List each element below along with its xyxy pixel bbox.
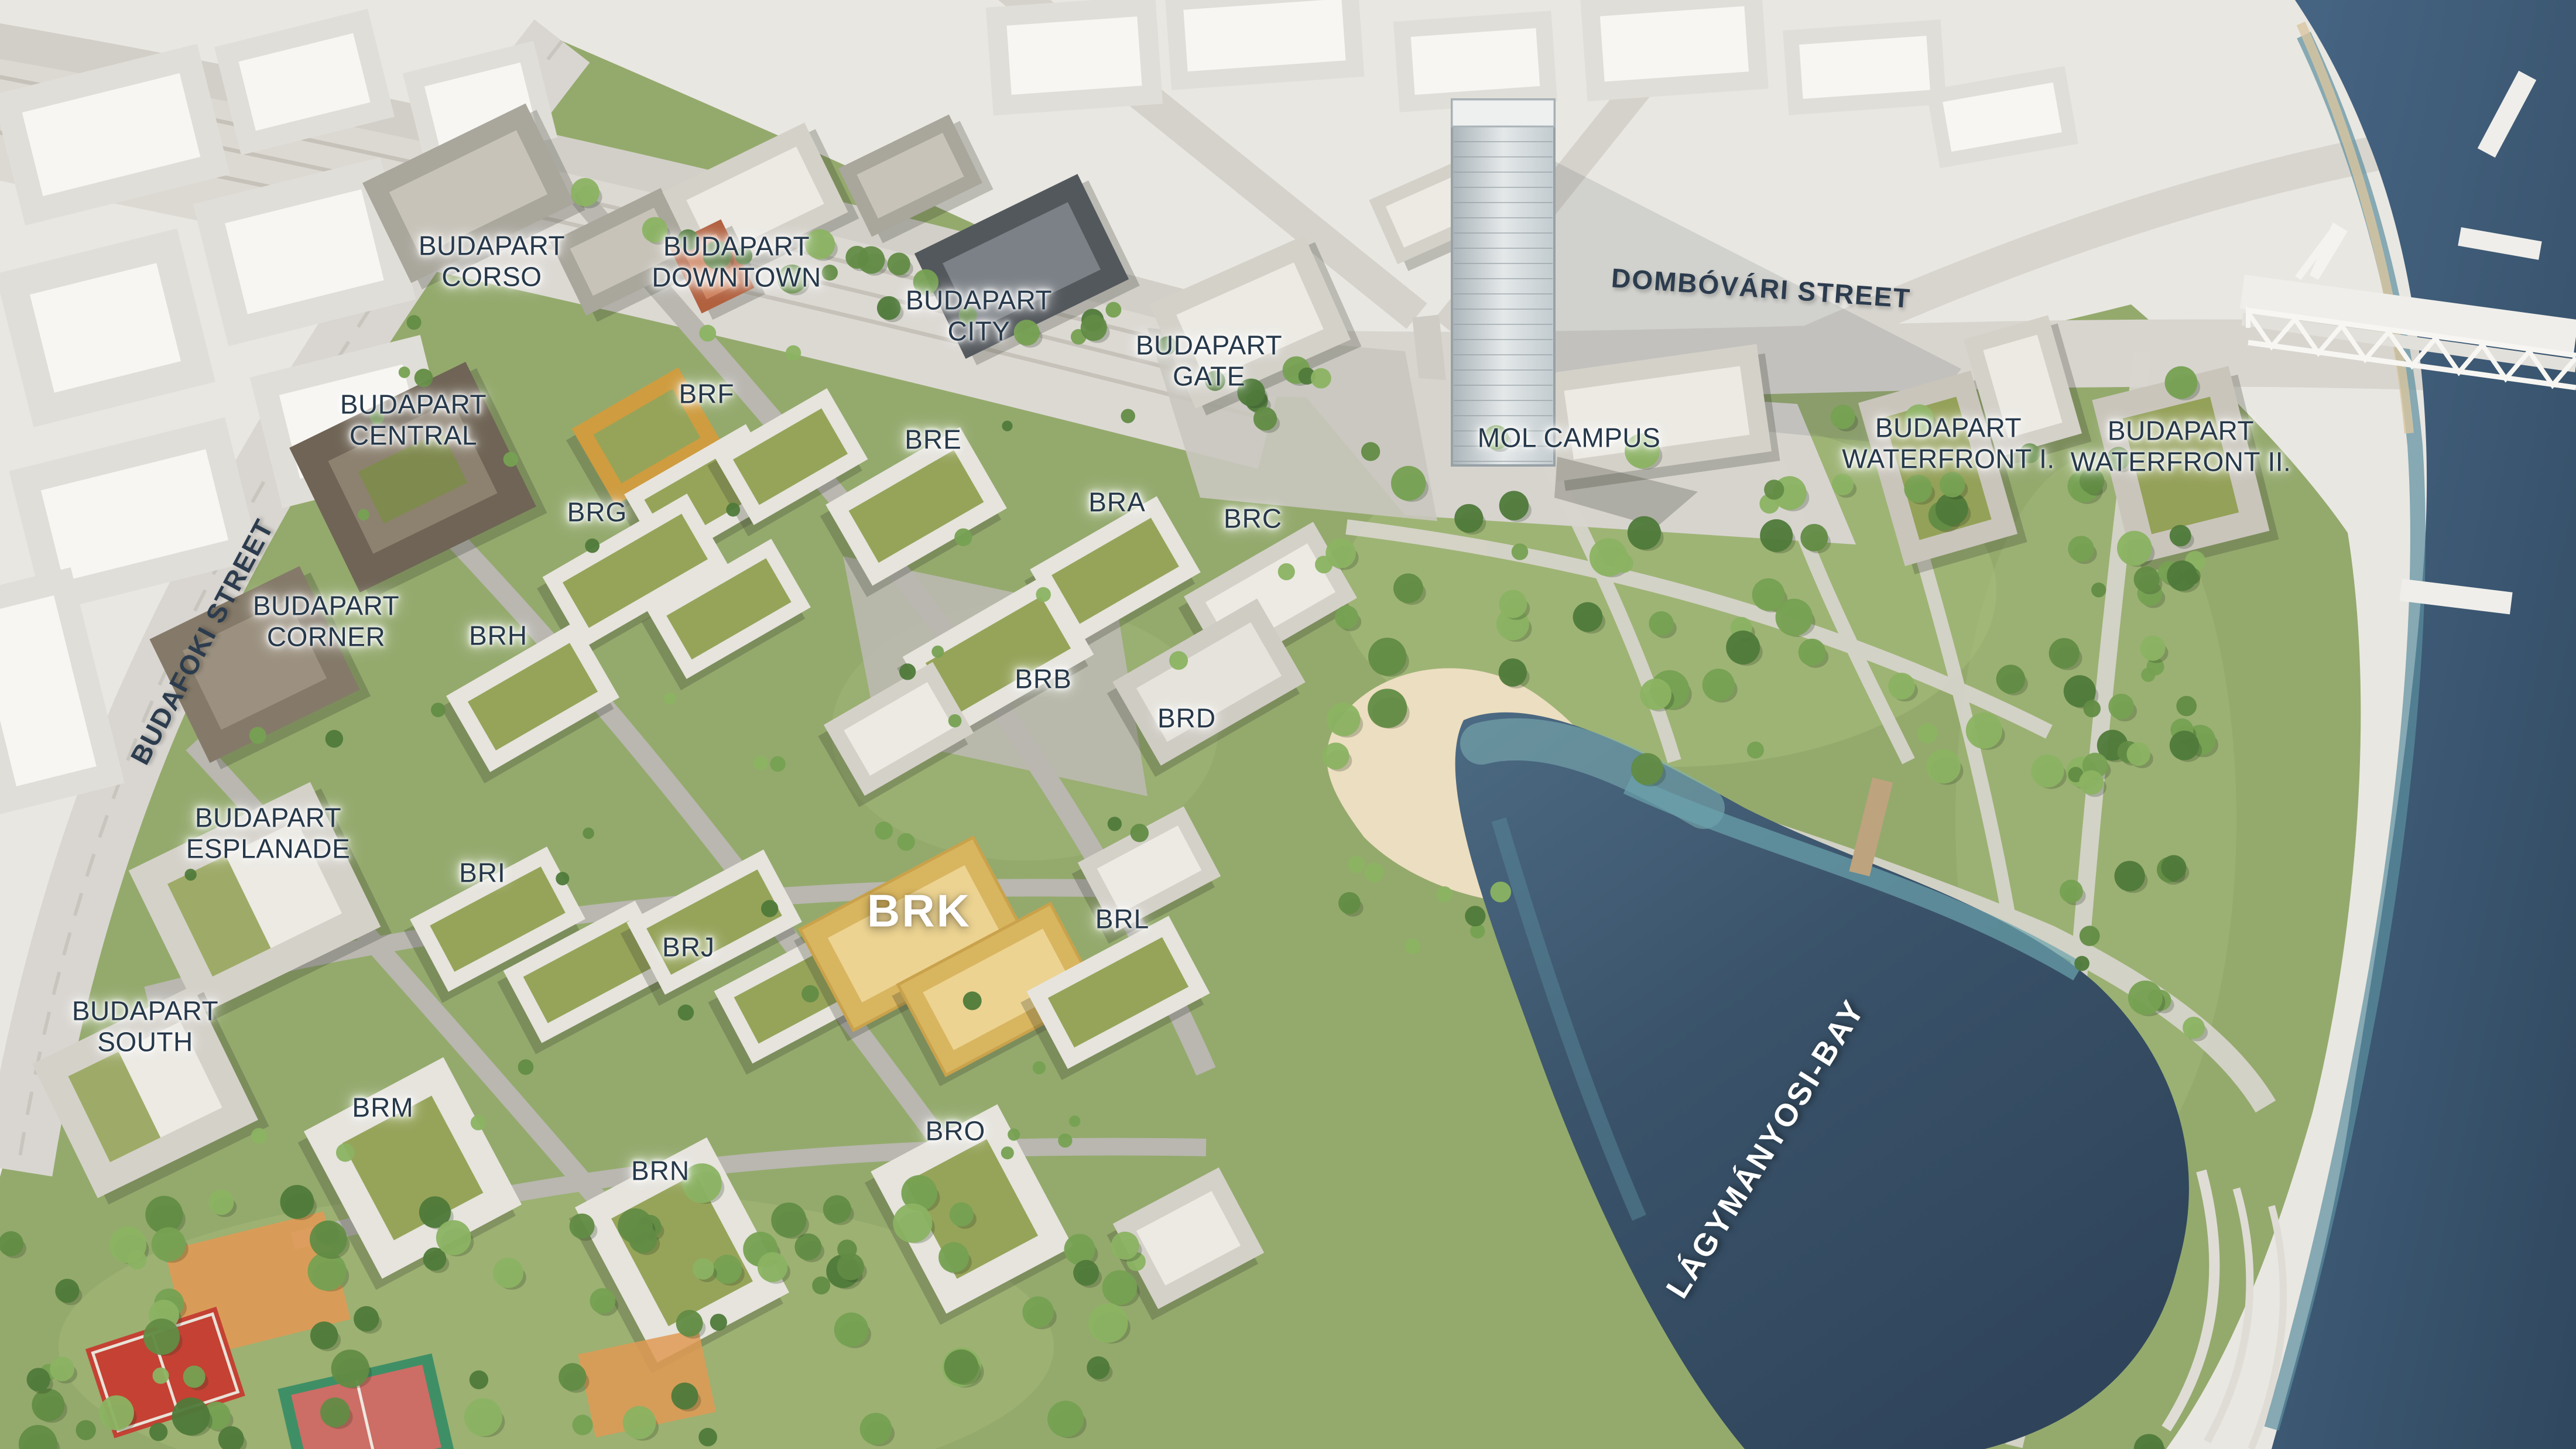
label-district-central: BUDAPART CENTRAL — [340, 389, 487, 452]
label-building-brm: BRM — [352, 1092, 413, 1123]
label-building-brg: BRG — [567, 496, 628, 527]
label-building-bro: BRO — [926, 1115, 986, 1146]
terrain-rendering — [0, 0, 2576, 1449]
building-block — [1783, 19, 1946, 115]
building-block — [1393, 11, 1557, 112]
label-district-waterfront-1: BUDAPART WATERFRONT I. — [1842, 413, 2054, 475]
label-building-brh: BRH — [469, 620, 527, 651]
label-building-bre: BRE — [905, 424, 962, 455]
label-district-corner: BUDAPART CORNER — [253, 591, 399, 653]
label-district-downtown: BUDAPART DOWNTOWN — [652, 231, 821, 294]
label-district-esplanade: BUDAPART ESPLANADE — [186, 803, 351, 865]
label-district-south: BUDAPART SOUTH — [72, 996, 218, 1059]
label-district-waterfront-2: BUDAPART WATERFRONT II. — [2071, 416, 2291, 478]
label-district-corso: BUDAPART CORSO — [419, 231, 565, 293]
label-building-brb: BRB — [1015, 663, 1072, 694]
building-block — [1580, 0, 1768, 101]
building-block — [1165, 0, 1365, 90]
label-district-gate: BUDAPART GATE — [1136, 330, 1282, 393]
masterplan-map: BUDAPART CORSO BUDAPART DOWNTOWN BUDAPAR… — [0, 0, 2576, 1449]
label-district-city: BUDAPART CITY — [906, 285, 1052, 348]
label-building-brl: BRL — [1095, 903, 1149, 934]
label-building-brd: BRD — [1157, 703, 1216, 734]
label-building-brj: BRJ — [662, 931, 715, 962]
label-building-bra: BRA — [1088, 487, 1146, 518]
label-building-brn: BRN — [631, 1155, 690, 1186]
label-building-bri: BRI — [459, 857, 506, 888]
label-building-brk-highlighted: BRK — [867, 885, 971, 938]
label-mol-campus: MOL CAMPUS — [1478, 422, 1661, 453]
label-building-brf: BRF — [679, 378, 735, 409]
building-block — [986, 0, 1163, 115]
label-building-brc: BRC — [1224, 503, 1282, 534]
